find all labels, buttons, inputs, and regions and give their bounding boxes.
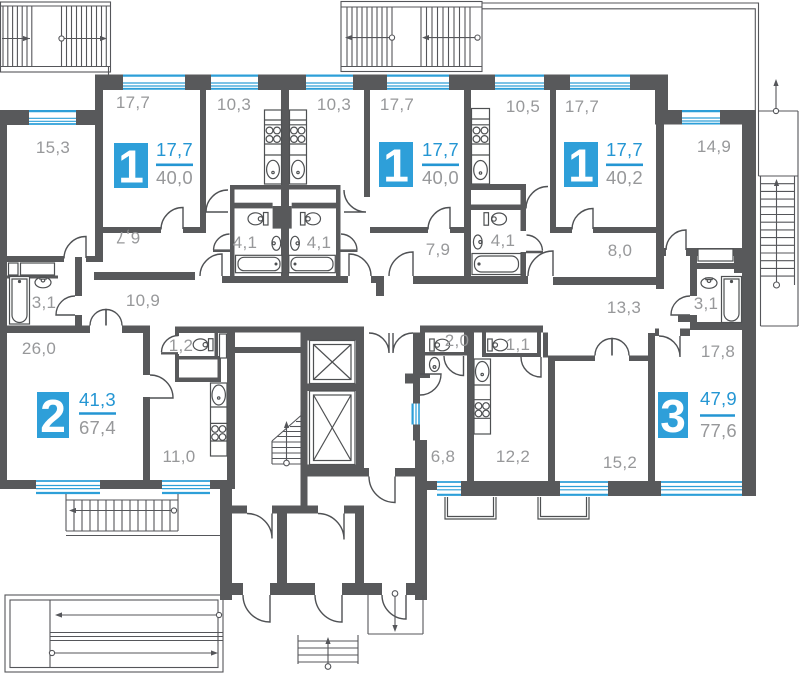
svg-text:15,2: 15,2 [603, 453, 637, 472]
svg-text:4,1: 4,1 [491, 231, 516, 250]
svg-text:17,7: 17,7 [380, 95, 414, 114]
svg-text:10,9: 10,9 [126, 291, 160, 310]
svg-text:10,5: 10,5 [506, 97, 540, 116]
svg-text:1,1: 1,1 [506, 335, 531, 354]
svg-text:4,1: 4,1 [233, 233, 258, 252]
svg-text:40,0: 40,0 [156, 167, 193, 188]
svg-text:12,2: 12,2 [496, 447, 530, 466]
svg-text:4,1: 4,1 [307, 233, 332, 252]
svg-text:40,2: 40,2 [606, 167, 643, 188]
svg-text:6,8: 6,8 [431, 447, 456, 466]
svg-text:14,9: 14,9 [697, 137, 731, 156]
svg-text:8,0: 8,0 [608, 241, 633, 260]
svg-text:10,3: 10,3 [317, 95, 351, 114]
svg-text:6,7: 6,7 [116, 228, 141, 247]
svg-text:2,0: 2,0 [445, 331, 470, 350]
svg-text:1,2: 1,2 [169, 336, 194, 355]
svg-text:40,0: 40,0 [422, 167, 459, 188]
svg-text:26,0: 26,0 [22, 339, 56, 358]
svg-text:41,3: 41,3 [79, 389, 116, 410]
svg-text:17,7: 17,7 [565, 97, 599, 116]
svg-text:67,4: 67,4 [79, 417, 116, 438]
svg-text:15,3: 15,3 [36, 138, 70, 157]
svg-text:17,7: 17,7 [606, 139, 643, 160]
svg-text:13,3: 13,3 [607, 298, 641, 317]
svg-text:3,1: 3,1 [694, 294, 719, 313]
svg-text:3,1: 3,1 [32, 293, 57, 312]
svg-text:1: 1 [118, 141, 144, 193]
svg-text:3: 3 [660, 390, 686, 442]
svg-text:10,3: 10,3 [217, 95, 251, 114]
svg-text:7,9: 7,9 [426, 240, 451, 259]
svg-text:77,6: 77,6 [700, 420, 737, 441]
svg-text:17,7: 17,7 [156, 139, 193, 160]
svg-text:47,9: 47,9 [700, 388, 737, 409]
svg-text:11,0: 11,0 [162, 447, 195, 466]
svg-text:17,8: 17,8 [701, 342, 735, 361]
svg-text:2: 2 [40, 390, 66, 442]
svg-text:17,7: 17,7 [422, 139, 459, 160]
svg-text:1: 1 [568, 140, 594, 192]
svg-text:1: 1 [383, 140, 409, 192]
svg-text:17,7: 17,7 [116, 93, 150, 112]
